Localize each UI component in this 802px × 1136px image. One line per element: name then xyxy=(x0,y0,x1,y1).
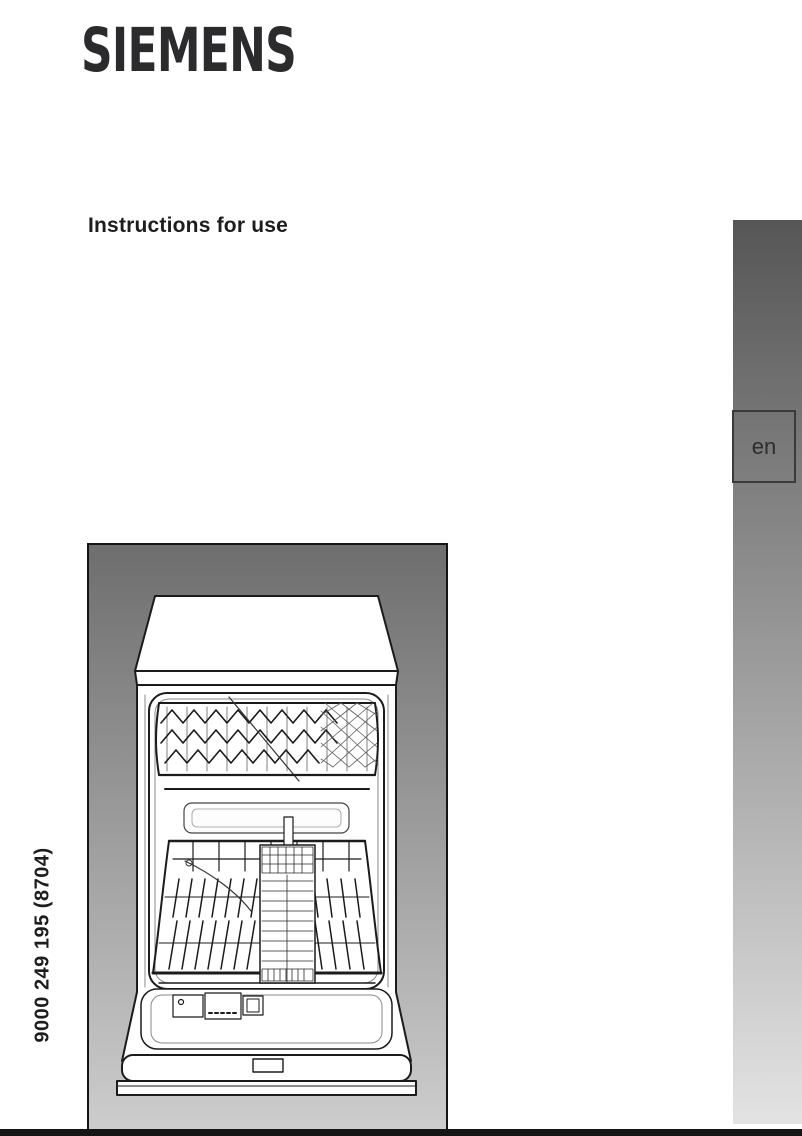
siemens-logo: SIEMENS xyxy=(81,20,296,81)
bottom-divider xyxy=(0,1129,802,1136)
language-code-label: en xyxy=(752,434,776,460)
manual-cover-page: SIEMENS Instructions for use en xyxy=(0,0,802,1136)
language-tab-en: en xyxy=(732,410,796,483)
language-index-bar xyxy=(733,220,802,1124)
page-title: Instructions for use xyxy=(88,212,288,240)
document-number: 9000 249 195 (8704) xyxy=(32,847,55,1042)
cover-figure-frame xyxy=(87,543,448,1130)
dishwasher-illustration xyxy=(89,545,446,1128)
